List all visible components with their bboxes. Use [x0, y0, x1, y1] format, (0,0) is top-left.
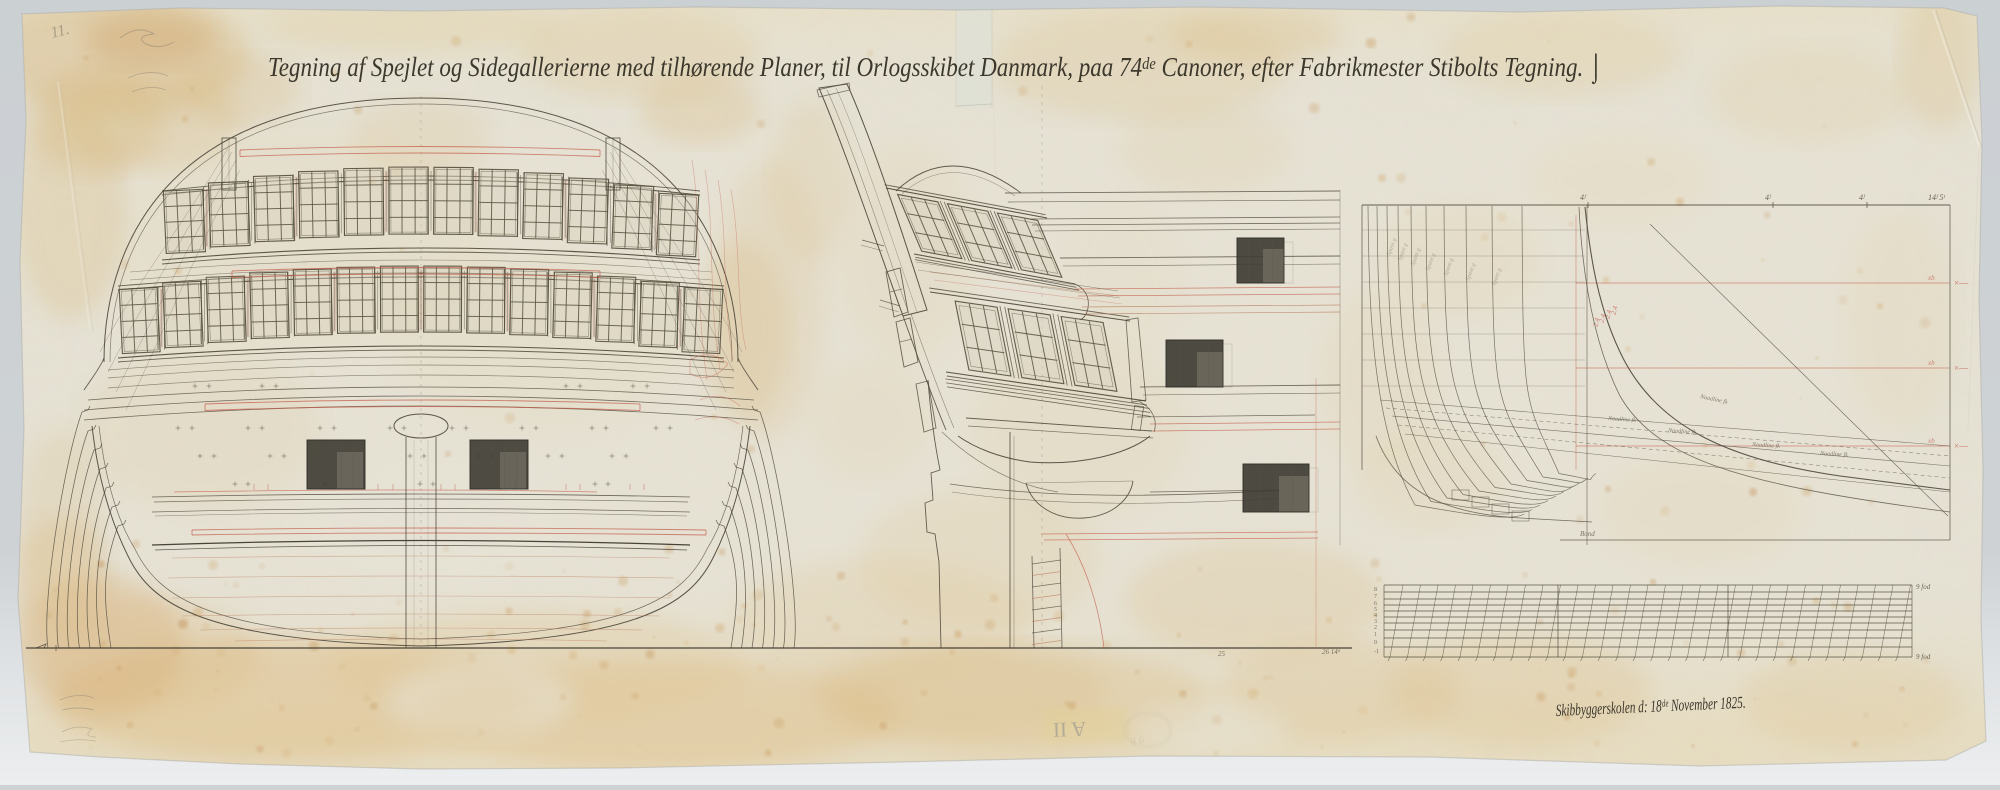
- svg-text:A II: A II: [1053, 717, 1087, 742]
- svg-text:9 fod: 9 fod: [1916, 653, 1931, 661]
- svg-text:Bond: Bond: [1580, 530, 1595, 538]
- svg-text:-1: -1: [1374, 649, 1379, 655]
- svg-text:0: 0: [1374, 640, 1377, 646]
- svg-text:xb: xb: [1927, 437, 1935, 445]
- svg-text:×—: ×—: [1954, 278, 1969, 288]
- svg-text:Tegning af Spejlet og Sidegall: Tegning af Spejlet og Sidegallerierne me…: [268, 52, 1603, 85]
- svg-text:8: 8: [1374, 587, 1377, 593]
- svg-text:xb: xb: [1927, 274, 1935, 282]
- svg-text:26 14ᵈ: 26 14ᵈ: [1322, 648, 1341, 656]
- svg-text:9 b: 9 b: [1129, 733, 1145, 747]
- svg-text:9 fod: 9 fod: [1916, 583, 1931, 591]
- svg-text:1: 1: [1374, 632, 1377, 638]
- svg-text:2: 2: [1374, 625, 1377, 631]
- svg-text:25: 25: [1218, 650, 1226, 658]
- svg-text:×—: ×—: [1954, 363, 1969, 373]
- svg-text:14ᶠ 5ᵗ: 14ᶠ 5ᵗ: [1928, 193, 1945, 202]
- svg-text:×—: ×—: [1954, 441, 1969, 451]
- svg-text:7: 7: [1374, 594, 1377, 600]
- svg-text:xb: xb: [1927, 359, 1935, 367]
